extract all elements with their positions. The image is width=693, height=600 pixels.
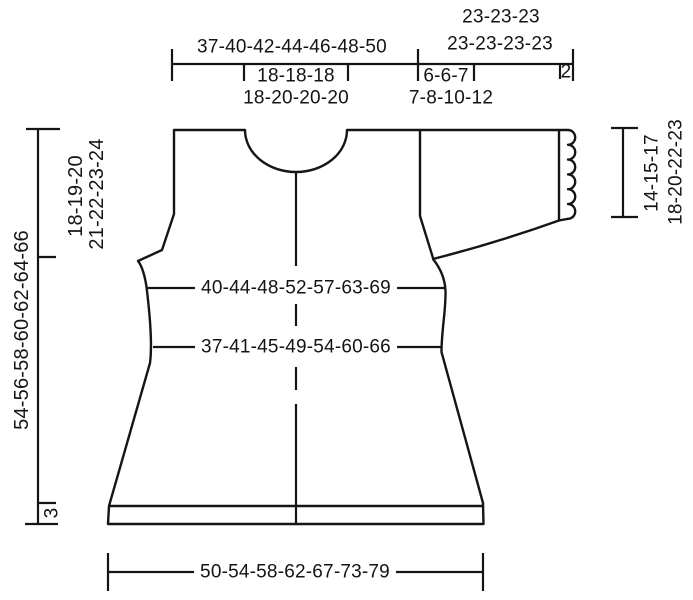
top-body-width-measure: 37-40-42-44-46-48-50 bbox=[197, 38, 387, 57]
yoke-depth-measure-row1: 18-19-20 bbox=[66, 155, 86, 237]
knitting-pattern-schematic: 23-23-23 23-23-23-23 37-40-42-44-46-48-5… bbox=[0, 0, 693, 600]
shoulder-measure-row2: 7-8-10-12 bbox=[409, 89, 493, 108]
hem-width-measure: 50-54-58-62-67-73-79 bbox=[194, 562, 396, 583]
shoulder-measure-row1: 6-6-7 bbox=[423, 67, 468, 86]
sleeve-top-measure-row2: 23-23-23-23 bbox=[447, 35, 553, 54]
sleeve-top-measure-row1: 23-23-23 bbox=[462, 8, 540, 27]
total-length-measure: 54-56-58-60-62-64-66 bbox=[12, 230, 32, 430]
neck-width-measure-row1: 18-18-18 bbox=[257, 67, 335, 86]
right-measure-line bbox=[611, 128, 638, 217]
sleeve-length-measure-row1: 14-15-17 bbox=[643, 134, 662, 212]
neck-width-measure-row2: 18-20-20-20 bbox=[243, 89, 349, 108]
right-armhole-line bbox=[420, 130, 433, 258]
yoke-depth-measure-row2: 21-22-23-24 bbox=[87, 138, 107, 249]
waist-width-measure: 37-41-45-49-54-60-66 bbox=[195, 337, 397, 358]
cuff-edge-measure: 2 bbox=[561, 63, 572, 82]
hem-band-measure: 3 bbox=[43, 508, 62, 519]
garment-outline bbox=[108, 130, 575, 524]
bust-width-measure: 40-44-48-52-57-63-69 bbox=[195, 278, 397, 299]
sleeve-length-measure-row2: 18-20-22-23 bbox=[667, 119, 686, 225]
